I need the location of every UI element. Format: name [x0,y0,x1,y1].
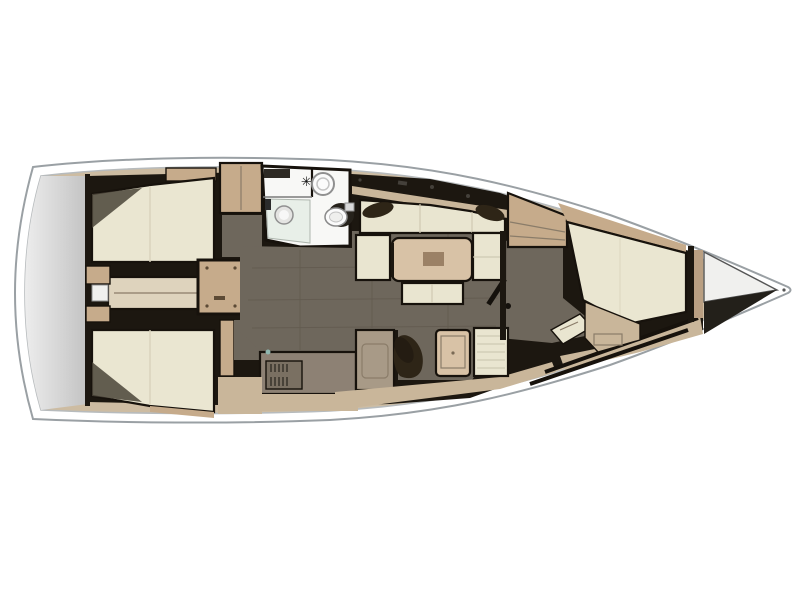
corridor-hatch [92,285,108,301]
corridor-locker-top [86,266,110,284]
table-inlay [423,252,444,266]
shower-faucet [265,199,271,210]
galley-faucet-icon [266,350,271,355]
sink-inner [279,210,289,220]
bow-fitting [782,288,785,291]
yacht-floorplan: ✳ [0,0,800,600]
toilet-seat [330,212,343,222]
head-compartment: ✳ [262,166,354,247]
bulkhead-wall [500,231,506,340]
chart-table-knob [451,351,454,354]
shower-mixer-icon: ✳ [301,175,312,190]
deck-dot [466,194,470,198]
deck-band-aft [218,377,262,414]
washbasin-icon [312,173,334,195]
berth-starboard [92,330,214,412]
toilet-tank [345,203,354,211]
table-edge-shadow [391,243,394,277]
transom-deck [25,176,88,410]
bow-bulkhead [688,246,694,322]
engine-bolt [233,266,236,269]
deck-dot [358,178,361,181]
head-shelf [264,169,290,178]
deck-dot [430,185,434,189]
berth-port [92,178,214,262]
engine-bolt [205,266,208,269]
engine-bolt [233,304,236,307]
bow-bulkhead-trim [694,250,703,318]
yacht-floorplan-canvas: ✳ [0,0,800,600]
settee-left [356,235,390,280]
engine-bolt [205,304,208,307]
transom-platform [25,174,90,410]
corridor-locker-bottom [86,306,110,322]
engine-box [198,260,244,314]
engine-handle [214,296,225,300]
wardrobe-starboard [220,320,234,376]
